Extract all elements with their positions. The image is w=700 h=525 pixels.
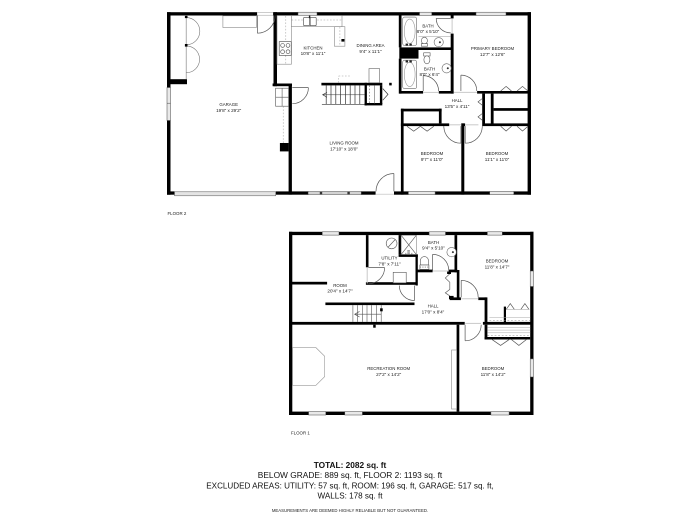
svg-text:LIVING ROOM: LIVING ROOM bbox=[330, 141, 359, 146]
svg-text:PRIMARY BEDROOM: PRIMARY BEDROOM bbox=[471, 46, 515, 51]
svg-text:11'1" x 11'0": 11'1" x 11'0" bbox=[485, 157, 510, 162]
svg-text:FLOOR 2: FLOOR 2 bbox=[168, 211, 187, 216]
svg-text:GARAGE: GARAGE bbox=[219, 102, 238, 107]
svg-text:RECREATION ROOM: RECREATION ROOM bbox=[367, 366, 410, 371]
svg-text:13'5" x 4'11": 13'5" x 4'11" bbox=[445, 104, 470, 109]
svg-text:EXCLUDED AREAS: UTILITY: 57 sq: EXCLUDED AREAS: UTILITY: 57 sq. ft, ROOM… bbox=[206, 481, 493, 490]
svg-text:BATH: BATH bbox=[428, 240, 439, 245]
svg-text:7'8" x 7'11": 7'8" x 7'11" bbox=[378, 261, 401, 266]
svg-text:19'8" x 29'2": 19'8" x 29'2" bbox=[216, 108, 242, 113]
svg-text:BATH: BATH bbox=[422, 23, 433, 28]
svg-text:ROOM: ROOM bbox=[333, 283, 347, 288]
svg-text:WALLS: 178 sq. ft: WALLS: 178 sq. ft bbox=[318, 492, 384, 501]
svg-text:11'8" x 14'2": 11'8" x 14'2" bbox=[481, 372, 506, 377]
svg-text:27'2" x 14'2": 27'2" x 14'2" bbox=[376, 372, 402, 377]
svg-text:11'8" x 14'7": 11'8" x 14'7" bbox=[485, 264, 510, 269]
svg-text:20'4" x 14'7": 20'4" x 14'7" bbox=[327, 289, 353, 294]
svg-text:BEDROOM: BEDROOM bbox=[486, 151, 509, 156]
svg-text:TOTAL: 2082 sq. ft: TOTAL: 2082 sq. ft bbox=[314, 460, 387, 470]
svg-text:BEDROOM: BEDROOM bbox=[482, 366, 505, 371]
svg-text:MEASUREMENTS ARE DEEMED HIGHLY: MEASUREMENTS ARE DEEMED HIGHLY RELIABLE … bbox=[272, 508, 428, 513]
svg-text:HALL: HALL bbox=[452, 98, 463, 103]
svg-text:HALL: HALL bbox=[428, 304, 439, 309]
svg-text:17'10" x 18'0": 17'10" x 18'0" bbox=[330, 147, 358, 152]
svg-text:10'8" x 11'1": 10'8" x 11'1" bbox=[301, 51, 326, 56]
svg-text:BEDROOM: BEDROOM bbox=[421, 151, 444, 156]
svg-text:UTILITY: UTILITY bbox=[381, 256, 397, 261]
svg-text:17'0" x 8'4": 17'0" x 8'4" bbox=[422, 310, 445, 315]
svg-text:8'0" x 5'10": 8'0" x 5'10" bbox=[417, 29, 440, 34]
svg-text:9'7" x 11'0": 9'7" x 11'0" bbox=[421, 157, 444, 162]
svg-text:BELOW GRADE: 889 sq. ft, FLOOR: BELOW GRADE: 889 sq. ft, FLOOR 2: 1193 s… bbox=[258, 470, 443, 480]
svg-text:9'4" x 11'1": 9'4" x 11'1" bbox=[359, 49, 382, 54]
svg-text:BEDROOM: BEDROOM bbox=[486, 259, 509, 264]
svg-text:FLOOR 1: FLOOR 1 bbox=[291, 431, 310, 436]
svg-text:BATH: BATH bbox=[424, 66, 435, 71]
svg-text:DINING AREA: DINING AREA bbox=[357, 43, 385, 48]
svg-text:8'0" x 6'4": 8'0" x 6'4" bbox=[419, 72, 439, 77]
svg-text:KITCHEN: KITCHEN bbox=[303, 45, 322, 50]
svg-text:9'4" x 5'10": 9'4" x 5'10" bbox=[422, 246, 445, 251]
svg-text:12'7" x 12'6": 12'7" x 12'6" bbox=[480, 52, 506, 57]
